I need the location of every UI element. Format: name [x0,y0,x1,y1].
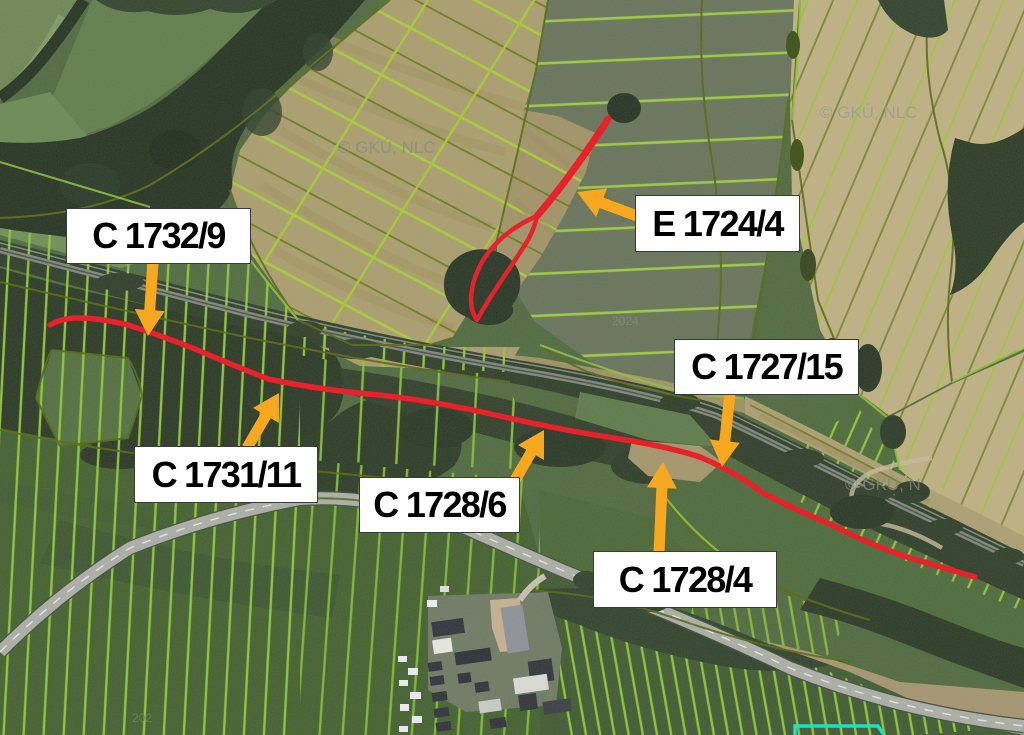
svg-text:© GKÚ, NLC: © GKÚ, NLC [338,138,436,157]
svg-text:202: 202 [132,711,152,725]
svg-text:2024: 2024 [612,314,639,328]
svg-text:© GKÚ, N: © GKÚ, N [845,475,921,494]
svg-text:© GKÚ, NLC: © GKÚ, NLC [820,103,918,122]
